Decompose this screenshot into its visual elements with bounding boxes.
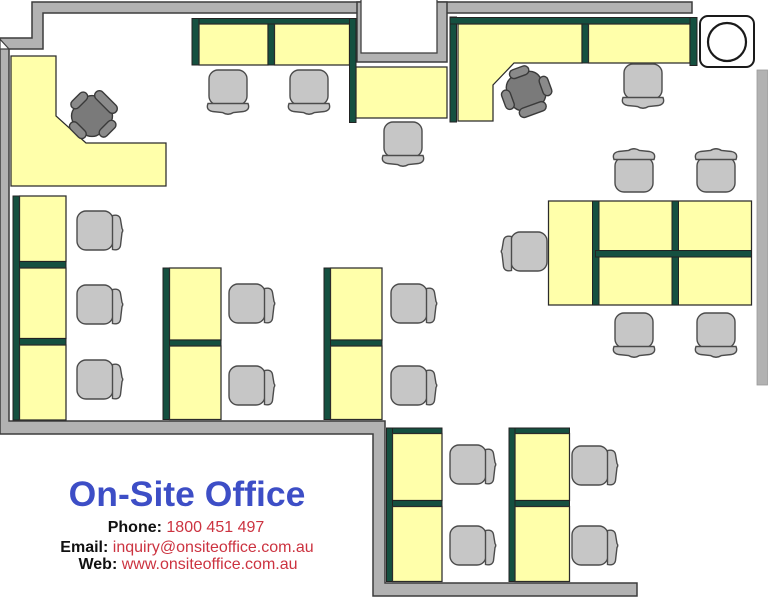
- svg-text:Web: www.onsiteoffice.com.au: Web: www.onsiteoffice.com.au: [78, 556, 297, 573]
- svg-text:Email: inquiry@onsiteoffice.co: Email: inquiry@onsiteoffice.com.au: [60, 539, 313, 556]
- svg-text:On-Site Office: On-Site Office: [69, 474, 306, 514]
- svg-text:Phone: 1800 451 497: Phone: 1800 451 497: [108, 519, 265, 536]
